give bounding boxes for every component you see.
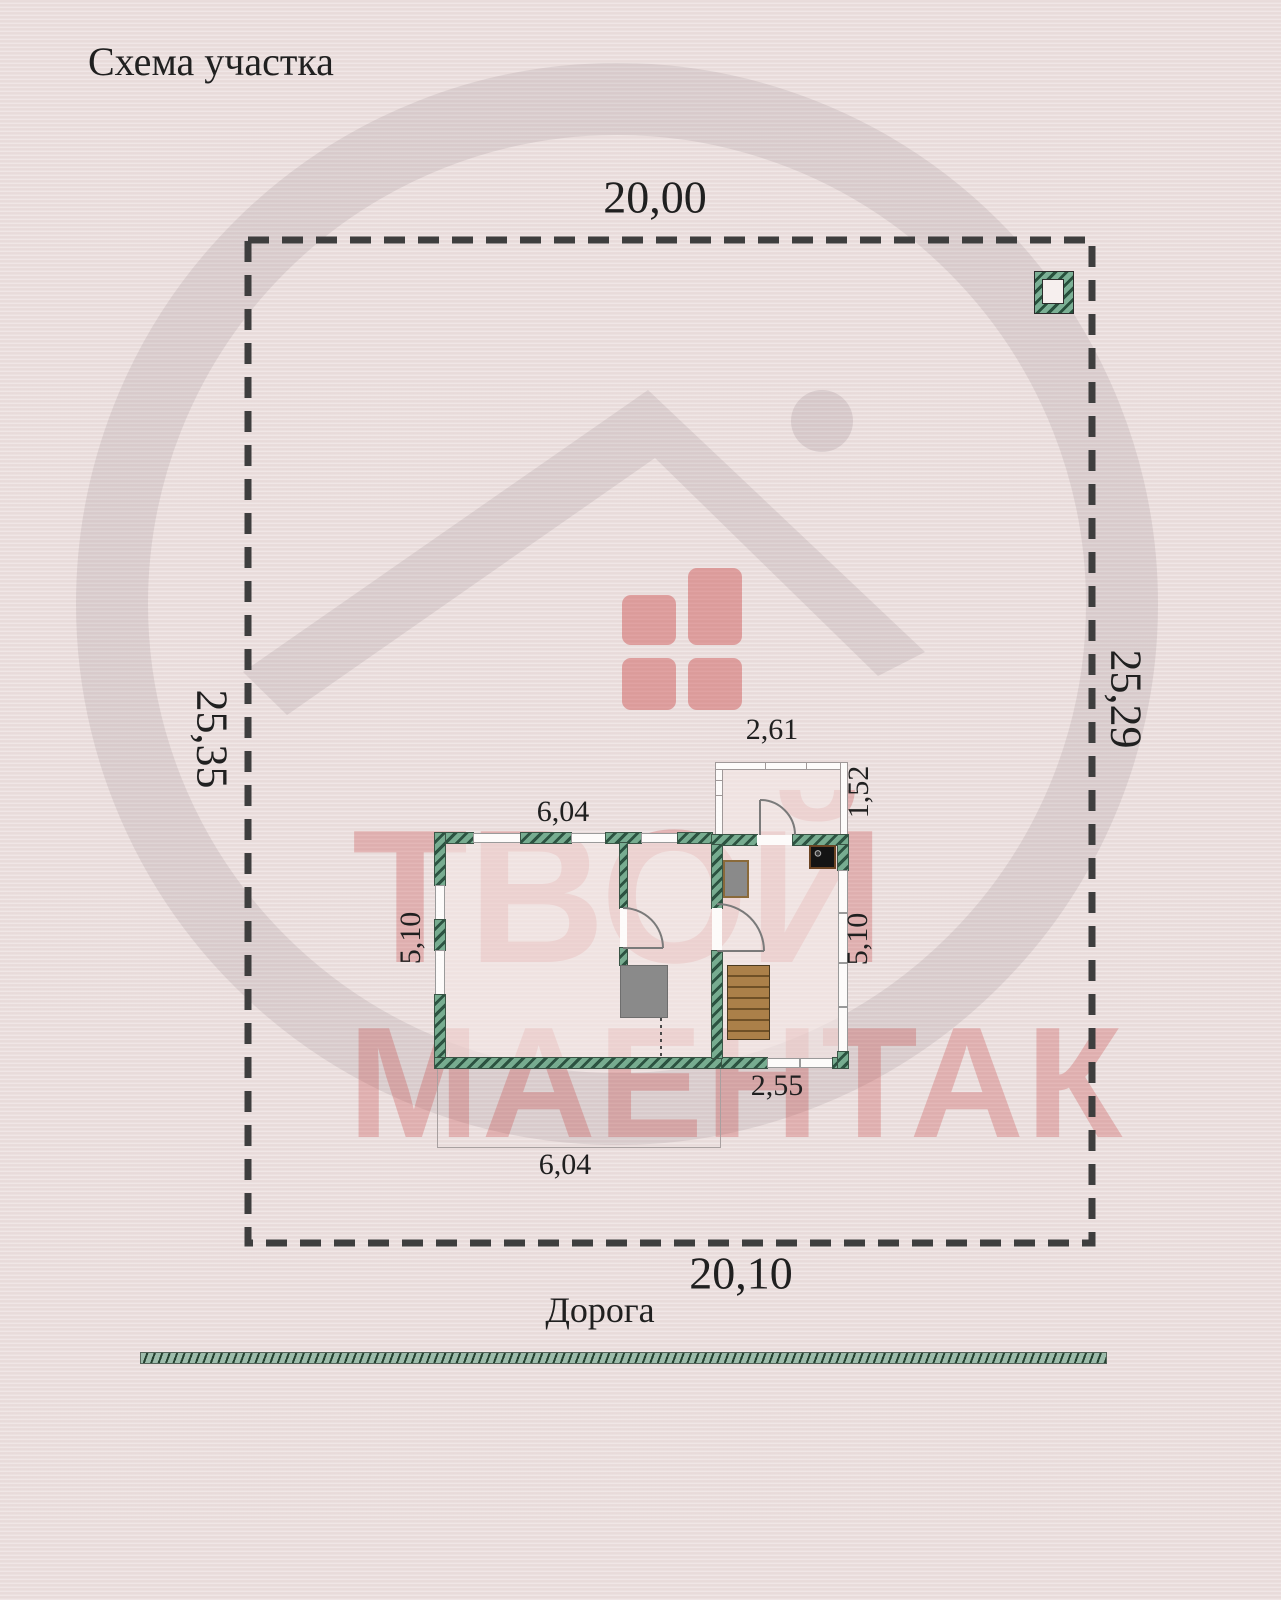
- door-swings: [0, 0, 1281, 1600]
- page-title: Схема участка: [88, 38, 334, 85]
- house-dim-top: 6,04: [537, 795, 590, 829]
- terrace-dim: 6,04: [539, 1148, 592, 1182]
- house-dim-left: 5,10: [394, 912, 428, 965]
- site-plan-page: ТВОЙ МАЕНТАК: [0, 0, 1281, 1600]
- plot-dim-left: 25,35: [187, 690, 238, 789]
- plot-dim-right: 25,29: [1101, 650, 1152, 749]
- wing-dim-bottom: 2,55: [751, 1069, 804, 1103]
- plot-dim-top: 20,00: [603, 171, 707, 224]
- plot-dim-bottom: 20,10: [689, 1247, 793, 1300]
- annex-dim-height: 1,52: [842, 766, 876, 819]
- wing-dim-right: 5,10: [841, 913, 875, 966]
- road-label: Дорога: [545, 1289, 654, 1331]
- annex-dim-width: 2,61: [746, 713, 799, 747]
